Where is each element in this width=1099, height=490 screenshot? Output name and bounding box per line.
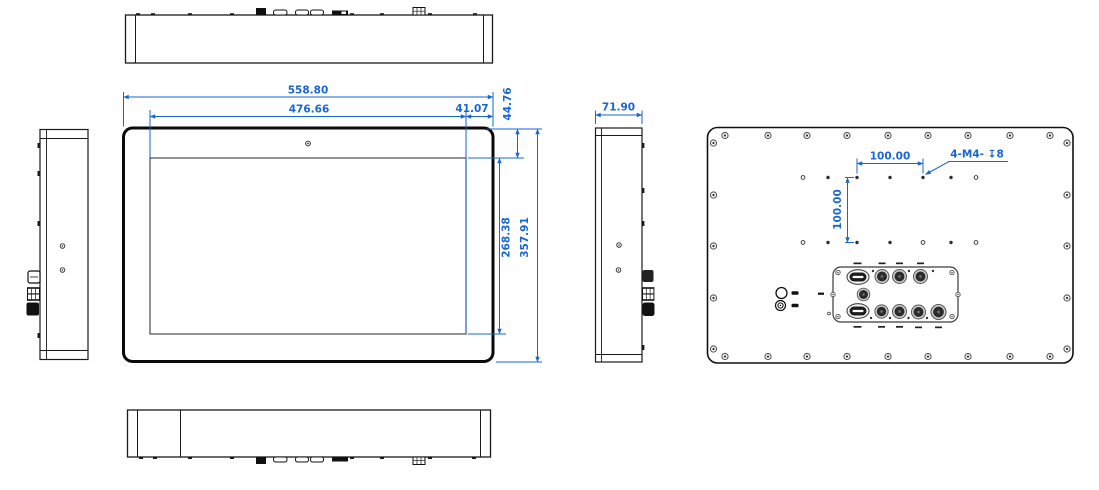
io-connector-plate	[831, 263, 960, 329]
top-connector-grid	[413, 8, 425, 16]
left-connector-block	[27, 303, 40, 316]
usb-connector-top	[847, 270, 869, 285]
front-view: 558.80 476.66 41.07 44.76 268.38 357.91	[124, 85, 543, 363]
back-view-body	[708, 128, 1074, 364]
right-side-connectors	[643, 270, 655, 316]
centerline-mark	[818, 293, 824, 295]
circular-connector-4	[875, 305, 888, 318]
bottom-connector-wide	[332, 457, 348, 462]
right-side-hole-1	[617, 243, 622, 248]
bottom-view	[128, 410, 491, 465]
right-side-hole-2	[616, 268, 621, 273]
circular-connector-6	[912, 305, 926, 319]
bottom-connector-round-2	[296, 457, 309, 462]
right-side-view: 71.90	[596, 102, 655, 363]
right-connector-grid	[643, 288, 654, 300]
bottom-connector-block	[256, 457, 266, 464]
right-connector-block-2	[643, 303, 655, 317]
dim-text-vesa-horizontal: 100.00	[870, 151, 911, 163]
circular-connector-3	[914, 270, 928, 284]
dim-text-overall-width: 558.80	[288, 85, 329, 97]
power-connector	[931, 305, 946, 320]
circular-connector-center	[857, 288, 870, 301]
top-connector-block	[256, 8, 266, 15]
bottom-view-body	[128, 410, 491, 457]
top-view-body	[126, 15, 493, 63]
bottom-connector-grid	[413, 457, 425, 465]
dim-text-depth: 71.90	[602, 102, 635, 114]
circular-connector-1	[875, 270, 889, 284]
left-side-view	[27, 130, 89, 360]
left-side-connectors	[27, 271, 41, 316]
dim-text-bezel-side: 41.07	[455, 103, 488, 115]
dim-text-bezel-top: 44.76	[502, 87, 514, 120]
circular-connector-5	[893, 305, 907, 319]
bottom-connector-round-1	[274, 457, 288, 462]
top-connector-wide-slot	[342, 12, 347, 15]
dim-text-vesa-vertical: 100.00	[832, 189, 844, 230]
dim-text-display-width: 476.66	[289, 104, 330, 116]
front-view-display-area	[150, 158, 466, 334]
dim-text-mount-note: 4-M4- ↧8	[950, 149, 1004, 161]
back-view: 100.00 100.00 4-M4- ↧8	[708, 128, 1074, 364]
top-connector-round-1	[274, 10, 288, 15]
left-side-hole-1	[60, 244, 65, 249]
left-connector-grid	[28, 288, 40, 300]
top-view-connectors	[256, 8, 425, 16]
bottom-view-connectors	[256, 457, 425, 465]
dim-text-overall-height: 357.91	[519, 217, 531, 258]
left-side-hole-2	[60, 268, 65, 273]
top-view	[126, 8, 493, 64]
camera-icon	[306, 141, 311, 146]
top-connector-round-2	[296, 10, 309, 15]
top-connector-round-3	[311, 10, 324, 15]
panel-pc-dimension-drawing: 558.80 476.66 41.07 44.76 268.38 357.91 …	[0, 0, 1099, 490]
bottom-connector-round-3	[311, 457, 324, 462]
dim-text-display-height: 268.38	[501, 217, 513, 258]
circular-connector-2	[893, 270, 907, 284]
usb-connector-bottom	[847, 304, 869, 319]
technical-drawing-page: 558.80 476.66 41.07 44.76 268.38 357.91 …	[0, 0, 1099, 490]
right-connector-block-1	[643, 270, 654, 282]
small-hole	[828, 312, 831, 315]
